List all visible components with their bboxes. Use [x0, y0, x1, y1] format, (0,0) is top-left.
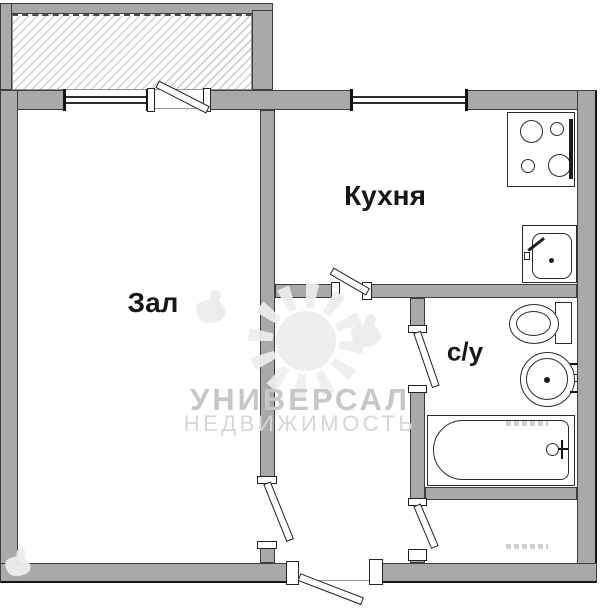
storage-door-leaf	[413, 503, 438, 548]
watermark-title: УНИВЕРСАЛ	[0, 382, 600, 418]
kitchen-window	[352, 90, 467, 110]
stove-burner-large-2	[548, 154, 571, 177]
balcony-window-left-jamb	[63, 89, 66, 111]
floor-plan: Зал Кухня с/у УНИВЕРСАЛ НЕДВИЖИМОСТЬ	[0, 0, 600, 613]
watermark-small-mark-2	[506, 544, 548, 549]
balcony-left-wall	[0, 3, 12, 90]
storage-door-bottom-jamb	[408, 549, 427, 561]
kitchen-window-right-jamb	[465, 89, 468, 111]
stove-burner-small-1	[550, 122, 564, 136]
kitchen-door-left-jamb	[331, 282, 340, 300]
watermark-sun-core-icon	[276, 311, 336, 371]
bathtub-icon	[427, 415, 575, 486]
watermark-small-mark-1	[506, 421, 548, 426]
stove-icon	[507, 112, 575, 187]
bottom-wall-left-segment	[0, 563, 288, 583]
balcony-window	[65, 90, 147, 110]
washbasin-icon	[520, 352, 575, 407]
washbasin-tap-top	[570, 363, 578, 365]
watermark-thumb-icon-2	[349, 319, 383, 350]
bathtub-tap-spout	[558, 448, 568, 450]
entrance-door-right-jamb	[369, 559, 383, 585]
balcony-right-wall	[252, 10, 273, 90]
toilet-bowl	[509, 304, 559, 344]
top-wall-mid-segment	[205, 90, 352, 110]
balcony-door-left-jamb	[147, 88, 155, 112]
washbasin-tap-bottom	[570, 391, 578, 393]
balcony-top-wall	[0, 3, 273, 14]
watermark-thumb-icon-1	[194, 295, 228, 326]
right-wall	[577, 90, 597, 583]
stove-burner-large-1	[520, 120, 543, 143]
stove-panel	[569, 119, 573, 179]
sink-faucet-base	[524, 252, 530, 260]
living-room-label: Зал	[128, 287, 179, 319]
living-room-door-leaf	[263, 482, 294, 542]
living-room-divider-wall-upper	[260, 110, 275, 483]
entrance-door-left-jamb	[286, 561, 299, 585]
bathroom-door-bottom-jamb	[408, 385, 427, 393]
kitchen-bottom-wall-right-segment	[368, 284, 577, 298]
bottom-wall-right-segment	[372, 563, 597, 583]
kitchen-bottom-wall-left-segment	[275, 284, 337, 298]
bathroom-divider-wall-mid	[410, 390, 425, 505]
kitchen-label: Кухня	[344, 180, 426, 212]
washbasin-drain	[544, 377, 550, 383]
kitchen-sink-icon	[522, 225, 577, 283]
entrance-door-leaf	[298, 573, 364, 605]
sink-drain	[549, 258, 554, 263]
balcony-hatch-area	[12, 14, 252, 90]
left-wall	[0, 90, 18, 583]
bathroom-internal-wall	[425, 487, 577, 500]
toilet-bowl-inner	[516, 311, 551, 336]
bathroom-door-leaf	[413, 331, 439, 388]
stove-burner-small-2	[521, 159, 535, 173]
bathroom-label: с/у	[447, 337, 483, 368]
kitchen-window-left-jamb	[350, 89, 353, 111]
living-room-door-bottom-jamb	[257, 541, 277, 549]
